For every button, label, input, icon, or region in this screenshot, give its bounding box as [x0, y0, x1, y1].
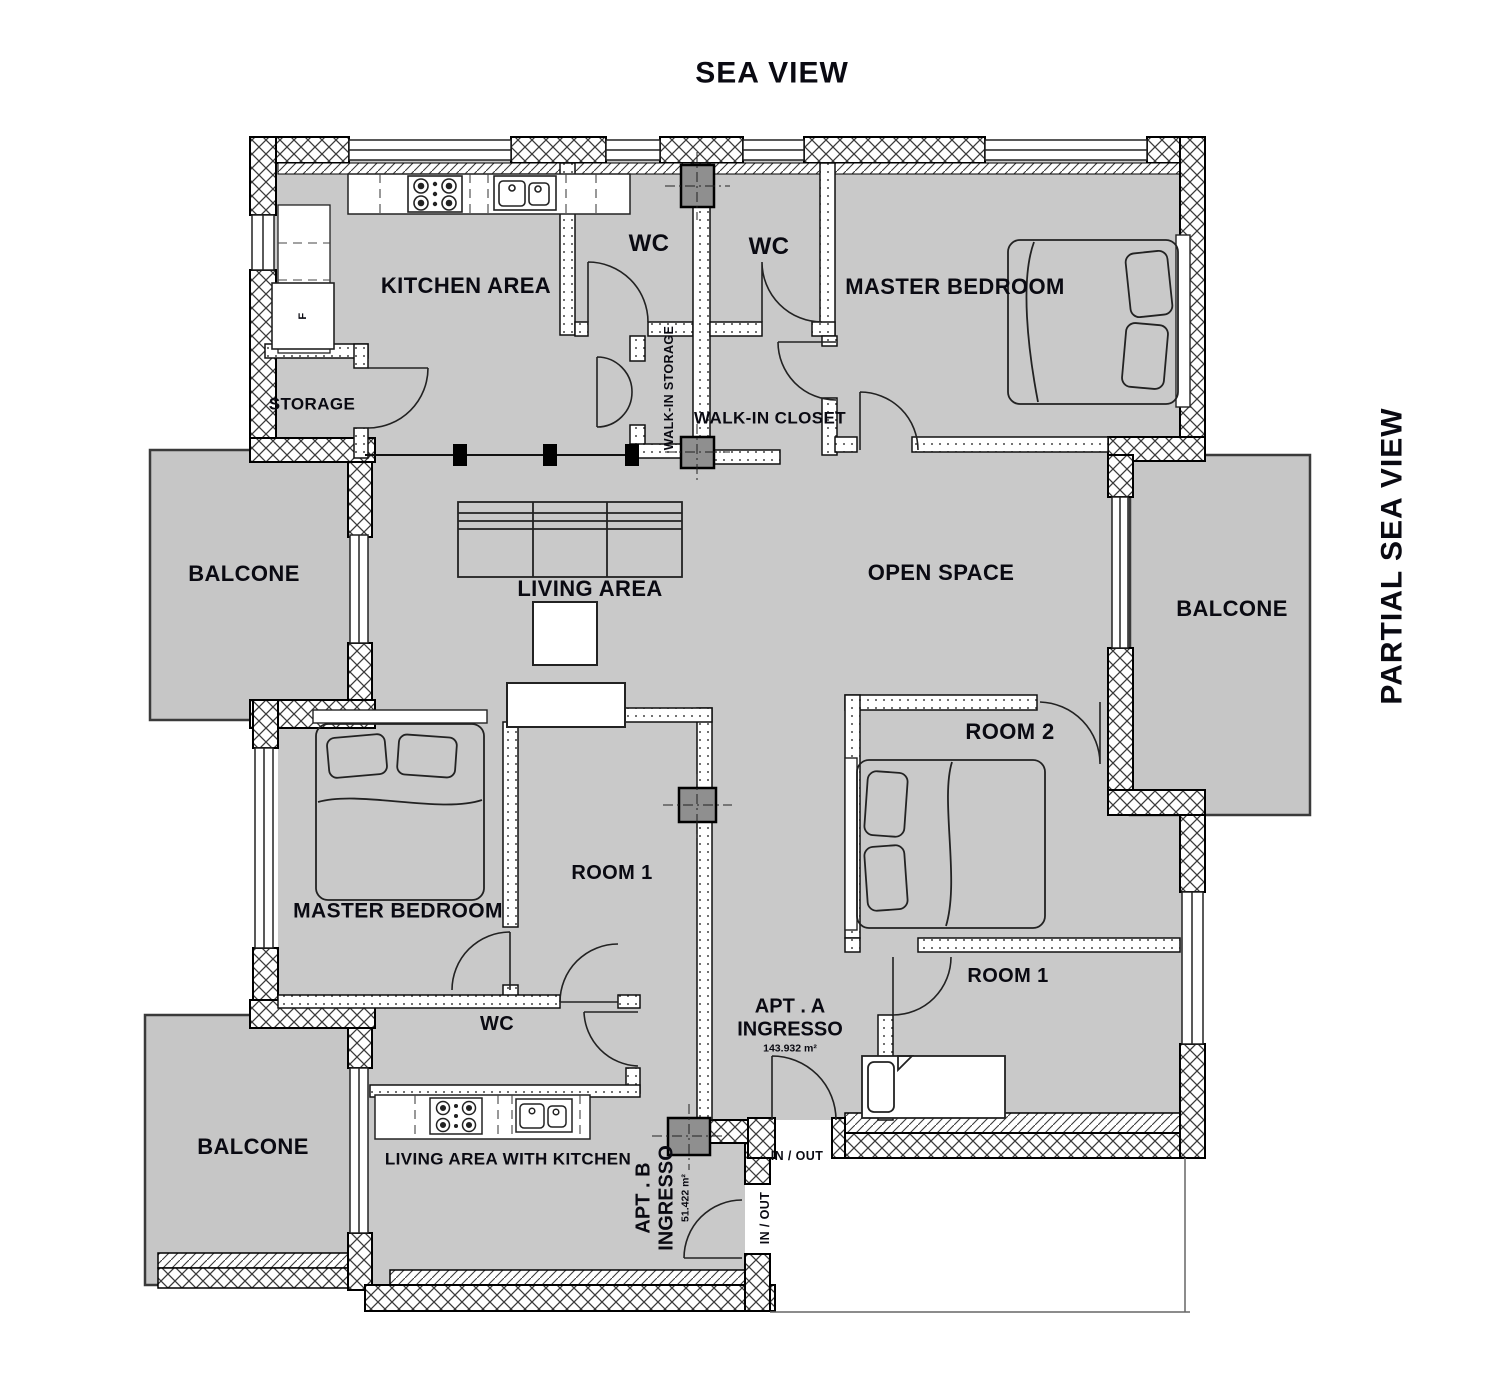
bed-single-room1 — [862, 1056, 1005, 1118]
label-living-area: LIVING AREA — [517, 577, 662, 601]
tv-cabinet — [507, 683, 625, 727]
reference-lines — [770, 1158, 1190, 1312]
floor-plan-drawing — [0, 0, 1500, 1400]
label-room1-apt-a: ROOM 1 — [967, 965, 1048, 987]
coffee-table — [533, 602, 597, 665]
stove-icon — [408, 176, 462, 212]
label-master-bedroom-top: MASTER BEDROOM — [845, 275, 1065, 299]
label-in-out-apt-a: IN / OUT — [771, 1150, 824, 1164]
sink-icon — [494, 176, 556, 210]
label-master-bedroom-bottom: MASTER BEDROOM — [293, 899, 503, 922]
label-walk-in-storage: WALK-IN STORAGE — [663, 326, 677, 451]
sink-icon — [516, 1099, 572, 1132]
kitchen-counter-bottom — [375, 1095, 590, 1139]
label-fridge: F — [297, 312, 309, 319]
label-storage: STORAGE — [269, 396, 356, 415]
label-wc-2: WC — [749, 234, 790, 260]
label-apt-b-ingresso: APT . B INGRESSO 51.422 m² — [633, 1145, 692, 1251]
balcony-right — [1130, 455, 1310, 815]
label-balcone-left: BALCONE — [188, 562, 300, 586]
label-wc-3: WC — [480, 1013, 514, 1035]
label-open-space: OPEN SPACE — [868, 561, 1015, 585]
label-balcone-bottom: BALCONE — [197, 1135, 309, 1159]
label-kitchen-area: KITCHEN AREA — [381, 274, 551, 298]
label-walk-in-closet: WALK-IN CLOSET — [694, 410, 846, 429]
label-room1-apt-b: ROOM 1 — [571, 862, 652, 884]
stove-icon — [430, 1098, 482, 1134]
label-room2: ROOM 2 — [965, 720, 1054, 744]
label-apt-a-ingresso: APT . A INGRESSO 143.932 m² — [737, 996, 843, 1055]
title-partial-sea-view: PARTIAL SEA VIEW — [1376, 407, 1409, 704]
floor-plan-canvas: SEA VIEW PARTIAL SEA VIEW KITCHEN AREA W… — [0, 0, 1500, 1400]
label-balcone-right: BALCONE — [1176, 597, 1288, 621]
title-sea-view: SEA VIEW — [695, 57, 849, 90]
label-wc-1: WC — [629, 231, 670, 257]
label-living-area-with-kitchen: LIVING AREA WITH KITCHEN — [385, 1151, 631, 1170]
label-in-out-apt-b: IN / OUT — [759, 1192, 773, 1245]
